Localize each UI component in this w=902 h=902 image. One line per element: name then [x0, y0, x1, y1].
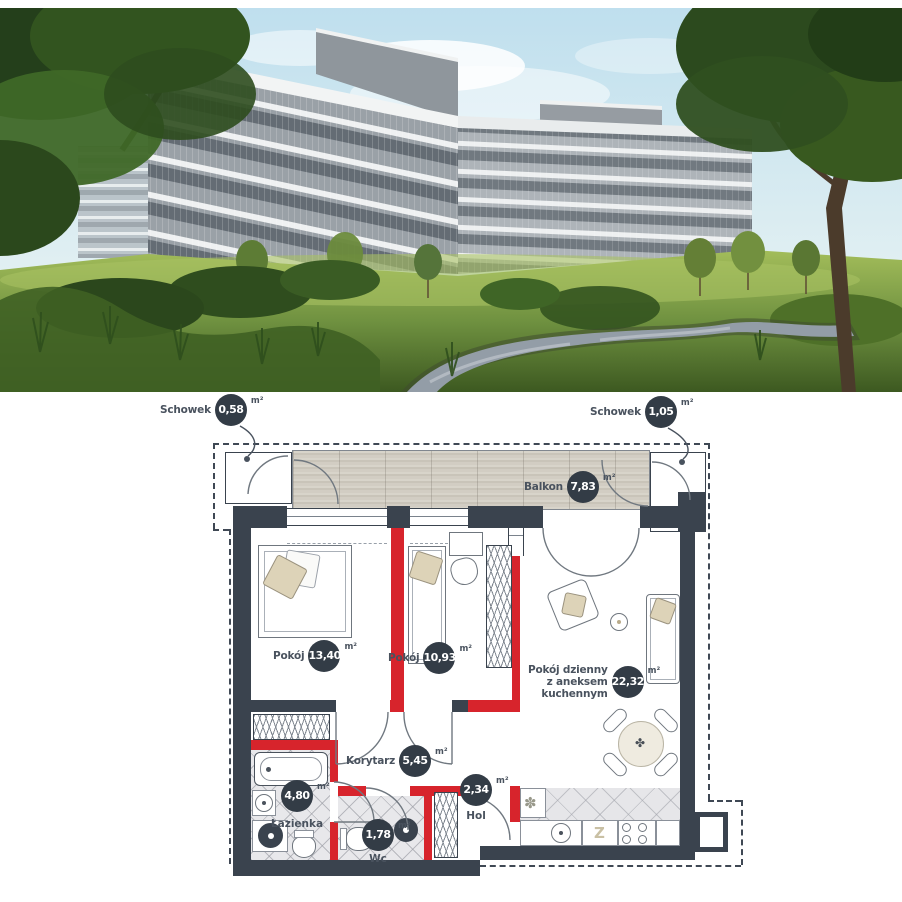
storage-left-label: Schowek — [160, 404, 211, 416]
wc-label: Wc — [358, 853, 398, 865]
balcony-unit: m² — [603, 473, 616, 483]
room2-area: 10,93 — [423, 642, 455, 674]
storage-left-area: 0,58 — [215, 394, 247, 426]
storage-right-area: 1,05 — [645, 396, 677, 428]
room2-label: Pokój — [388, 652, 419, 664]
storage-right-leader-dot — [679, 459, 685, 465]
wc-badge: 1,78 m² — [362, 819, 411, 851]
wc-area: 1,78 — [362, 819, 394, 851]
balcony-area: 7,83 — [567, 471, 599, 503]
room1-label: Pokój — [273, 650, 304, 662]
storage-right-label: Schowek — [590, 406, 641, 418]
storage-left-leader-line — [240, 426, 255, 456]
room1-badge: Pokój 13,40 m² — [273, 640, 357, 672]
room1-unit: m² — [344, 642, 357, 652]
listing-image: ✽ Z — [0, 0, 902, 902]
room2-badge: Pokój 10,93 m² — [388, 642, 472, 674]
hall-label: Hol — [456, 810, 496, 822]
storage-right-unit: m² — [681, 398, 694, 408]
living-balcony-door-arc-2 — [591, 528, 639, 576]
bathroom-label: Łazienka — [267, 818, 327, 830]
storage-left-badge: Schowek 0,58 m² — [160, 394, 263, 426]
corridor-label: Korytarz — [346, 755, 395, 767]
building-photo-art — [0, 8, 902, 393]
living-badge: Pokój dzienny z aneksem kuchennym 22,32 … — [528, 664, 660, 700]
corridor-area: 5,45 — [399, 745, 431, 777]
bathroom-badge: 4,80 m² — [281, 780, 330, 812]
storage-left-leader-dot — [244, 456, 250, 462]
balcony-badge: Balkon 7,83 m² — [524, 471, 615, 503]
hall-unit: m² — [496, 776, 509, 786]
bathroom-unit: m² — [317, 782, 330, 792]
storage-left-unit: m² — [251, 396, 264, 406]
hall-area: 2,34 — [460, 774, 492, 806]
wc-unit: m² — [398, 821, 411, 831]
hall-badge: 2,34 m² — [460, 774, 509, 806]
storage-right-door-arc — [652, 462, 690, 500]
floor-plan: ✽ Z — [0, 392, 902, 902]
living-label: Pokój dzienny z aneksem kuchennym — [528, 664, 608, 700]
living-unit: m² — [648, 666, 661, 676]
balcony-left-door-arc — [294, 460, 338, 504]
living-label-line2: z aneksem — [547, 676, 608, 688]
living-area: 22,32 — [612, 666, 644, 698]
storage-right-badge: Schowek 1,05 m² — [590, 396, 693, 428]
storage-right-leader-line — [668, 428, 688, 459]
room1-area: 13,40 — [308, 640, 340, 672]
living-label-line3: kuchennym — [541, 688, 607, 700]
balcony-label: Balkon — [524, 481, 563, 493]
living-label-line1: Pokój dzienny — [528, 664, 608, 676]
corridor-badge: Korytarz 5,45 m² — [346, 745, 448, 777]
bathroom-area: 4,80 — [281, 780, 313, 812]
storage-left-door-arc — [248, 456, 288, 494]
living-balcony-door-arc-1 — [543, 528, 591, 576]
room2-unit: m² — [459, 644, 472, 654]
building-photo — [0, 8, 902, 393]
corridor-unit: m² — [435, 747, 448, 757]
